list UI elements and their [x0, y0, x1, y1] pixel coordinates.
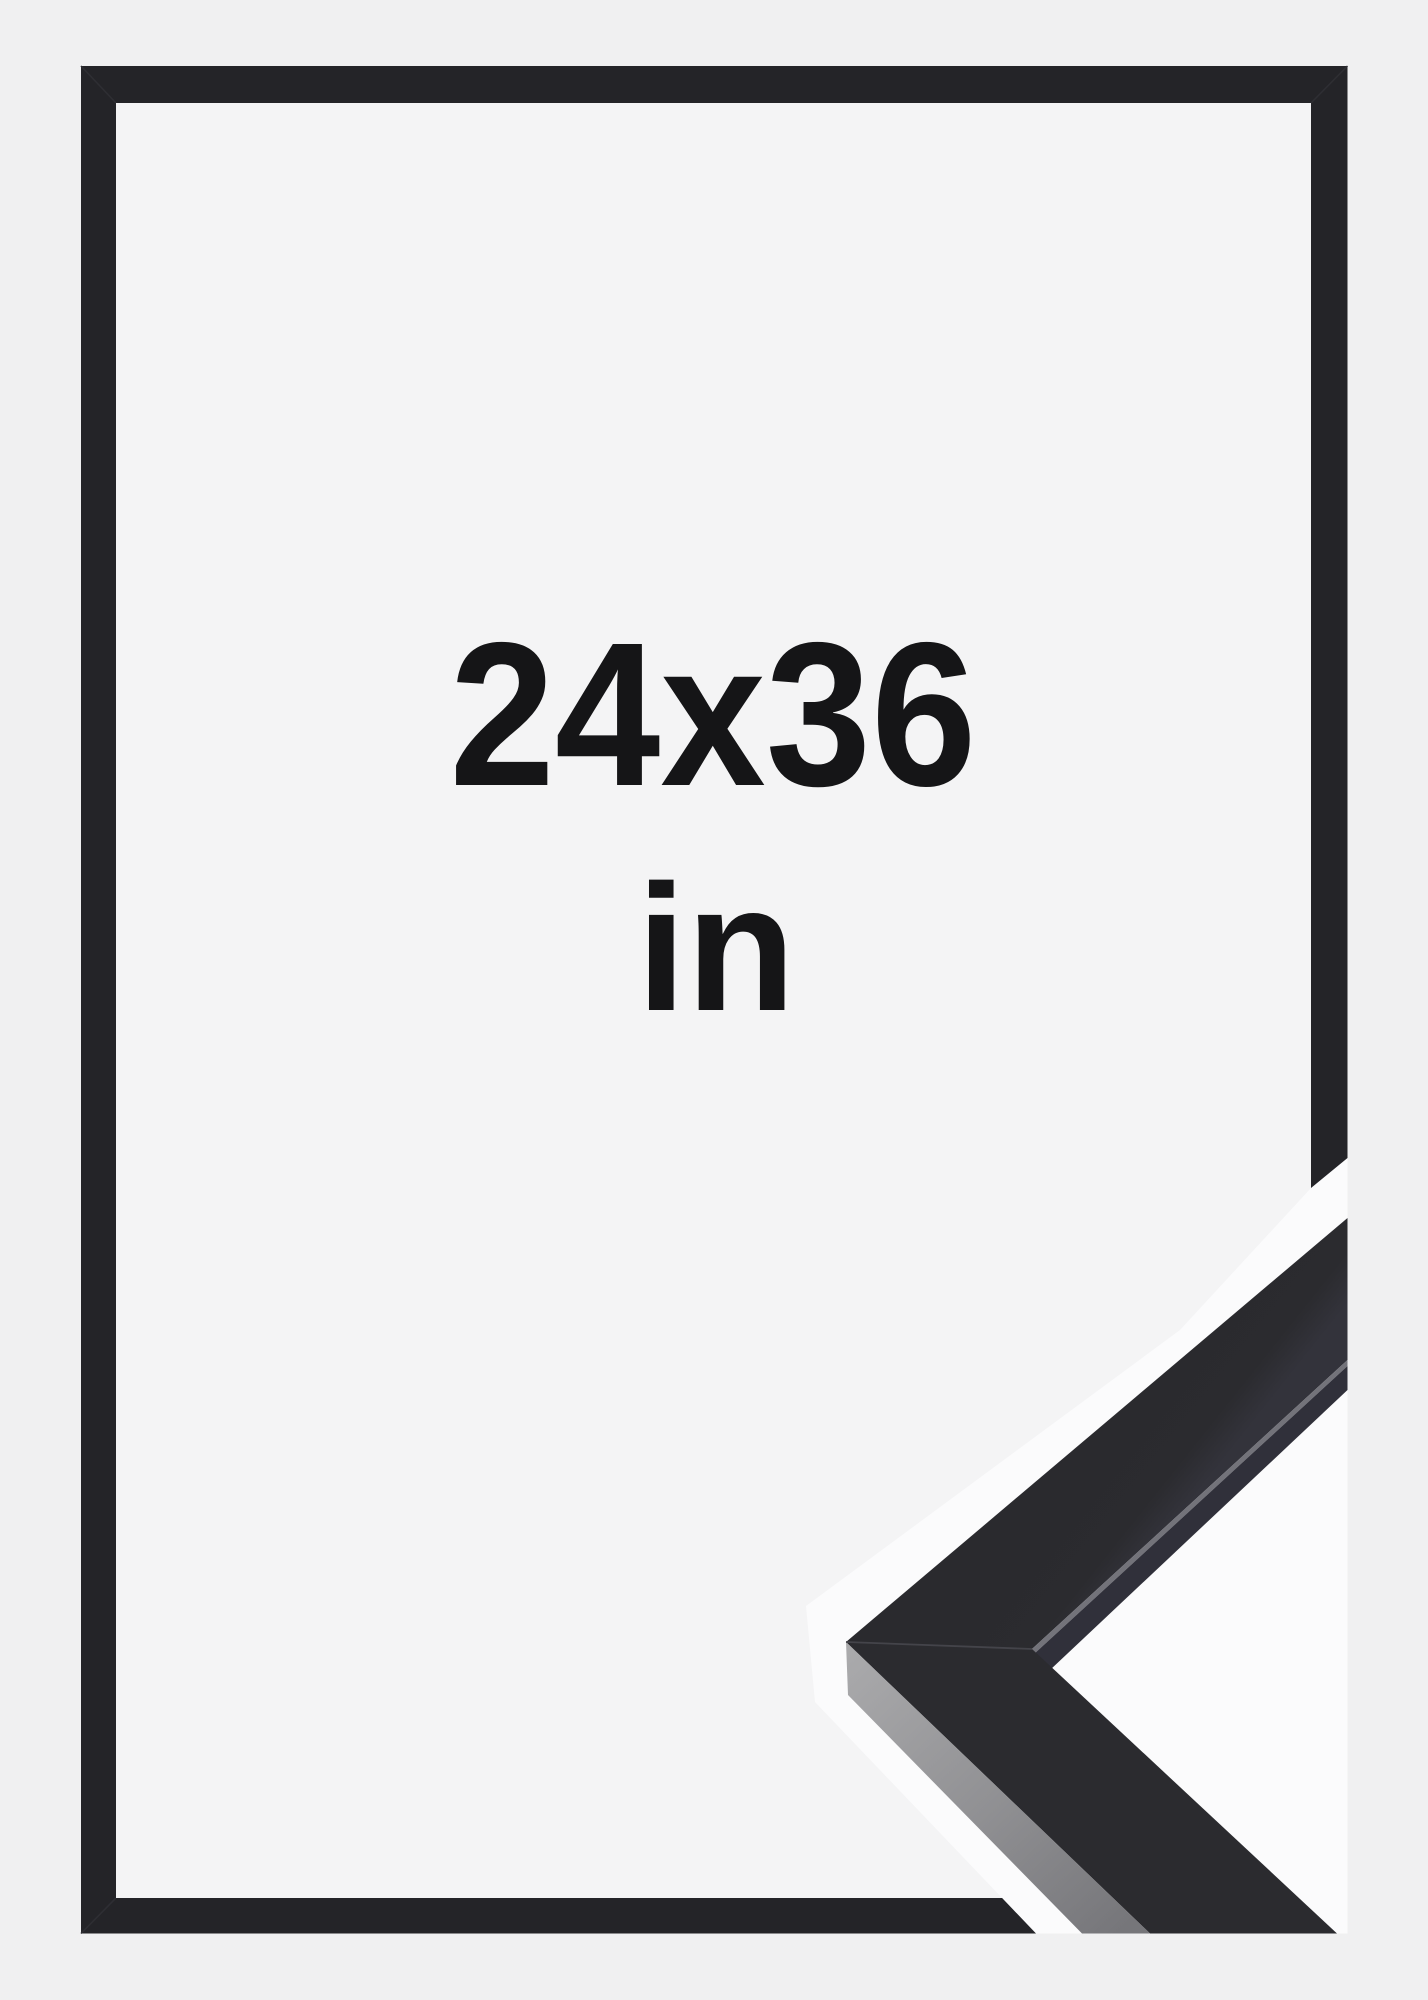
svg-text:24x36: 24x36 [450, 600, 977, 829]
svg-text:in: in [637, 848, 796, 1049]
